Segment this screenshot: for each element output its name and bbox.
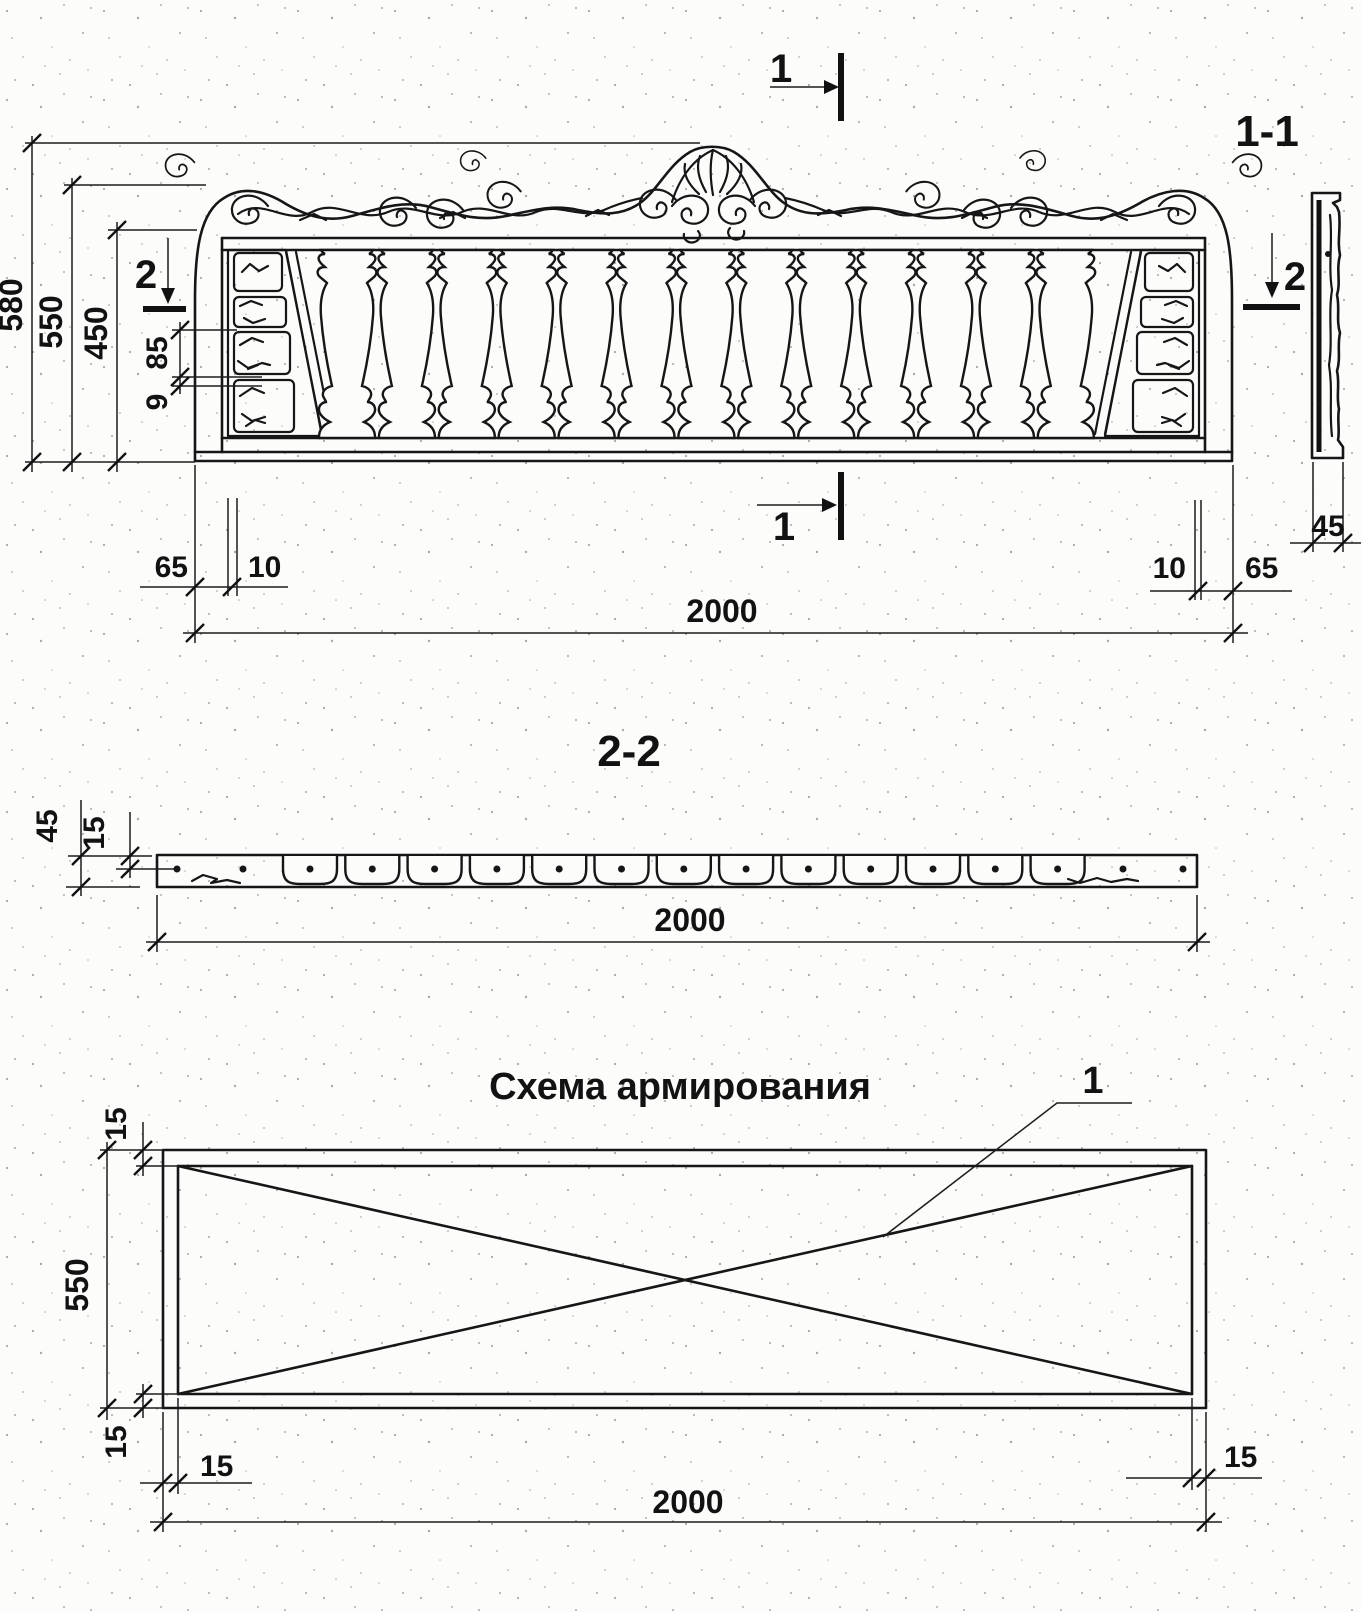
reinforcement-title: Схема армирования [489, 1066, 871, 1108]
dim-45-plan-label: 45 [31, 809, 64, 842]
baluster [857, 250, 916, 438]
dim-left-15-label: 15 [200, 1450, 233, 1483]
dim-9-label: 9 [141, 394, 174, 411]
dim-550-label: 550 [33, 295, 69, 348]
marker-top-label: 1 [770, 47, 792, 91]
dim-top-15-label: 15 [100, 1107, 133, 1140]
baluster-cut [968, 856, 1022, 884]
baluster-cut [1031, 856, 1085, 884]
baluster-cut [532, 856, 586, 884]
dim-45-side-label: 45 [1311, 510, 1344, 543]
baluster-cut [595, 856, 649, 884]
scan-noise [0, 0, 1361, 1612]
dim-right-65-label: 65 [1245, 552, 1278, 585]
dim-550-reinf-label: 550 [59, 1258, 95, 1311]
baluster [437, 250, 496, 438]
baluster-cut [906, 856, 960, 884]
marker-left-label: 2 [135, 253, 157, 297]
marker-bottom-label: 1 [773, 505, 795, 549]
baluster [497, 250, 556, 438]
dim-2000-reinf-label: 2000 [652, 1484, 723, 1520]
dim-450-label: 450 [78, 306, 114, 359]
dim-85-label: 85 [141, 336, 174, 369]
callout-1-label: 1 [1082, 1060, 1103, 1102]
baluster-cut [657, 856, 711, 884]
dim-2000-label: 2000 [686, 593, 757, 629]
section-1-1-label: 1-1 [1235, 107, 1299, 156]
dim-right-10-label: 10 [1153, 552, 1186, 585]
dim-2000-plan-label: 2000 [654, 902, 725, 938]
baluster [378, 250, 437, 438]
baluster [977, 250, 1036, 438]
dim-left-10-label: 10 [248, 551, 281, 584]
baluster [557, 250, 616, 438]
marker-right-label: 2 [1284, 255, 1306, 299]
baluster-cut [781, 856, 835, 884]
baluster [917, 250, 976, 438]
baluster-cut [719, 856, 773, 884]
baluster [1036, 250, 1095, 438]
baluster [617, 250, 676, 438]
baluster-cut [283, 856, 337, 884]
dim-580-label: 580 [0, 278, 29, 331]
baluster-cut [844, 856, 898, 884]
blueprint-sheet: 1 1 2 2 [0, 0, 1361, 1612]
baluster-cut [470, 856, 524, 884]
dim-left-65-label: 65 [155, 551, 188, 584]
dim-bottom-15-label: 15 [100, 1425, 133, 1458]
baluster [677, 250, 736, 438]
baluster [737, 250, 796, 438]
section-2-2-label: 2-2 [597, 727, 661, 776]
dim-right-15-label: 15 [1224, 1441, 1257, 1474]
baluster [318, 250, 377, 438]
balustrade-technical-drawing: 1 1 2 2 [0, 0, 1361, 1612]
dim-15-plan-label: 15 [78, 816, 111, 849]
baluster [797, 250, 856, 438]
baluster-cut [408, 856, 462, 884]
baluster-cut [345, 856, 399, 884]
